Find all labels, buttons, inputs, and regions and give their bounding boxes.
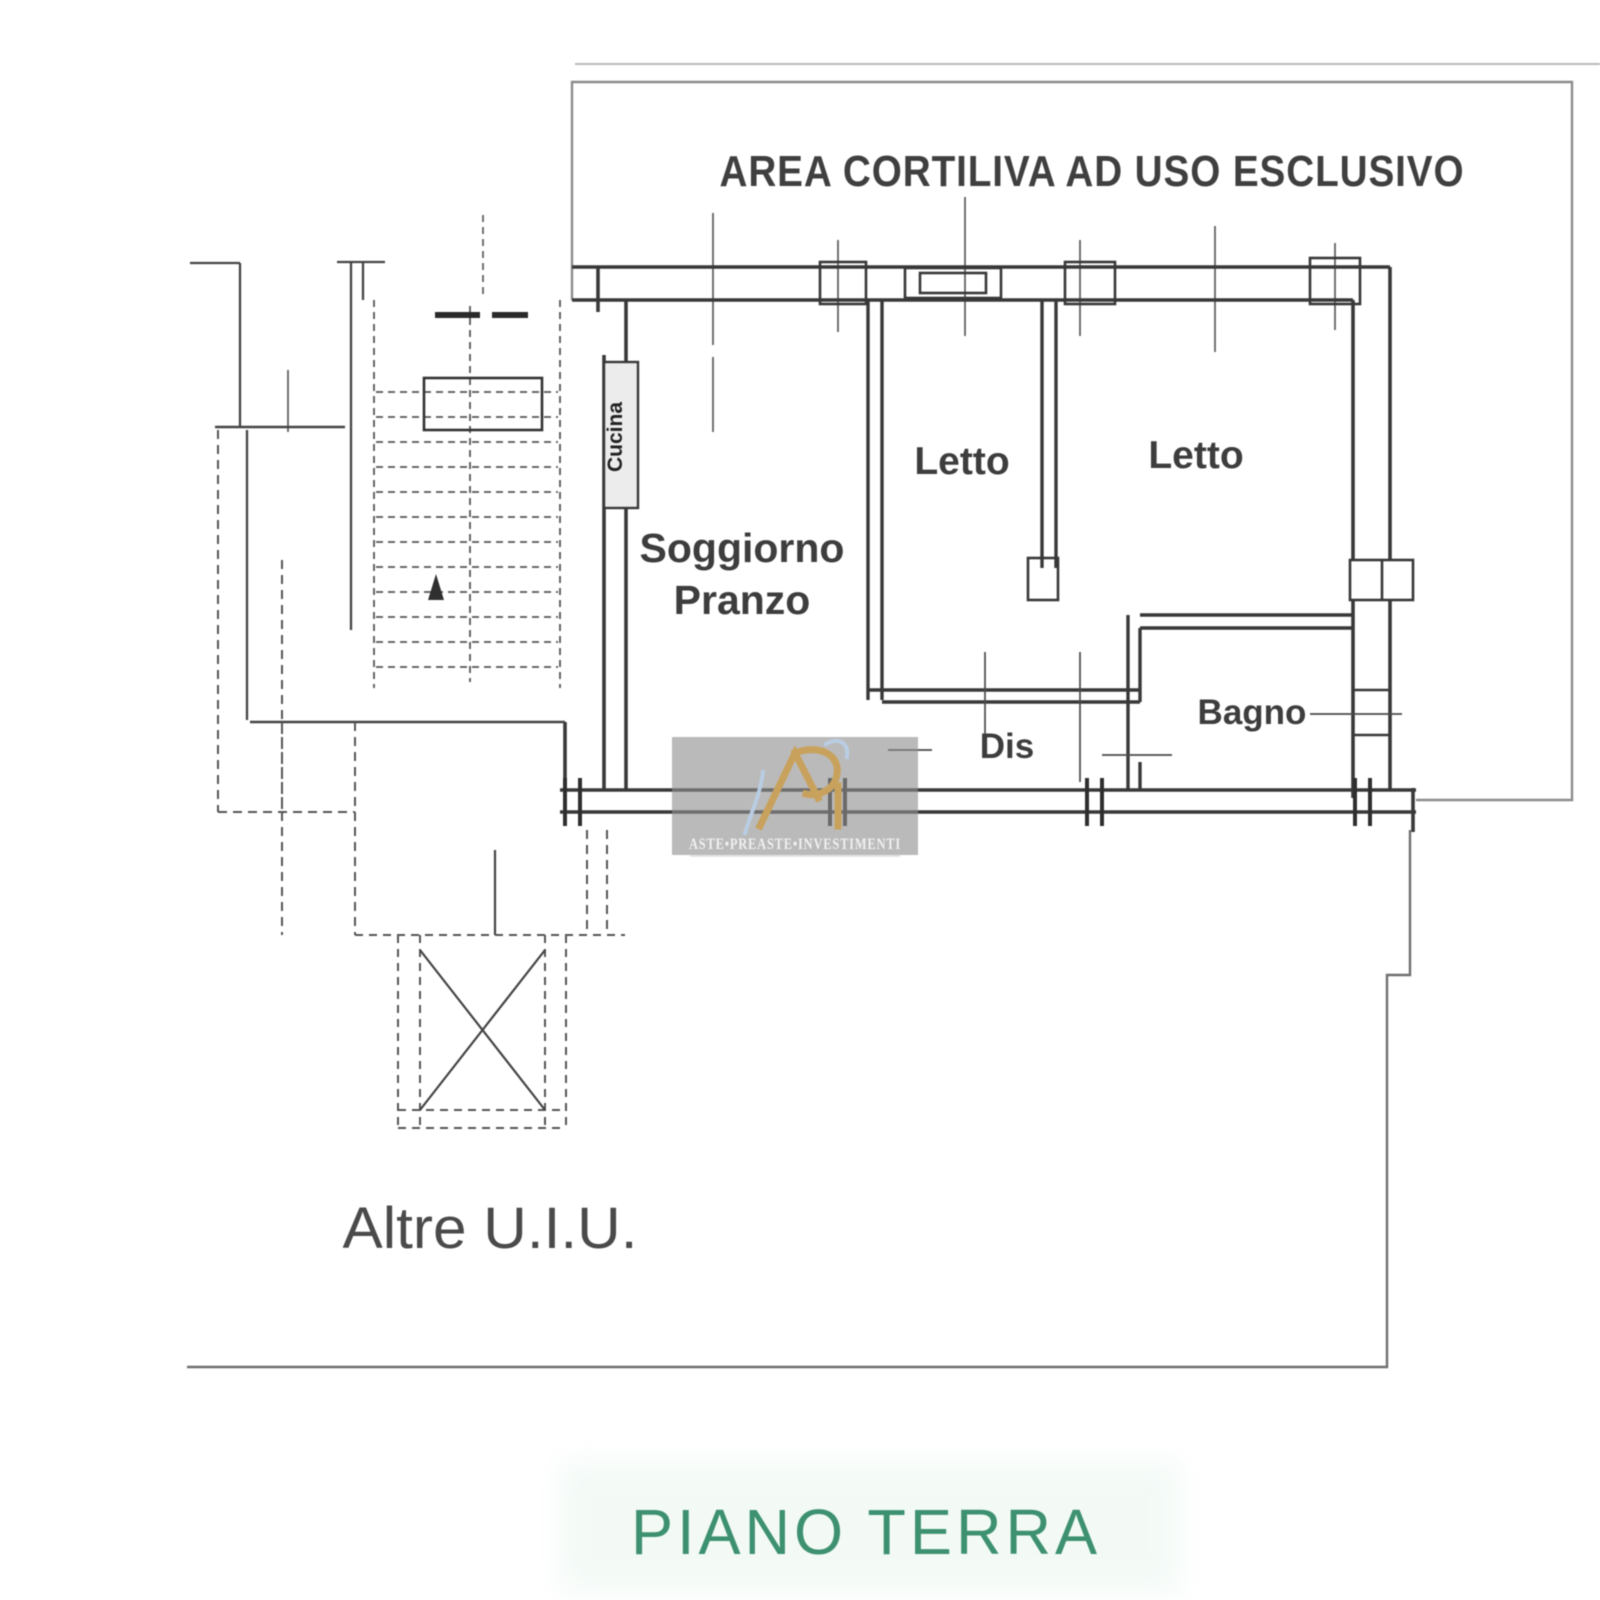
room-label-living-1: Soggiorno — [640, 525, 845, 571]
floor-plan-page: Cucina — [0, 0, 1600, 1600]
floor-title: PIANO TERRA — [631, 1496, 1101, 1568]
shaft-cross-icon — [420, 950, 545, 1110]
courtyard-area-title: AREA CORTILIVA AD USO ESCLUSIVO — [720, 147, 1465, 196]
room-label-bedroom-right: Letto — [1148, 434, 1243, 477]
floor-plan-svg: Cucina — [0, 0, 1600, 1600]
room-label-kitchen: Cucina — [604, 402, 627, 472]
watermark: ASTE•PREASTE•INVESTIMENTI — [672, 737, 918, 856]
left-annex-dashed — [218, 430, 607, 935]
room-label-bedroom-left: Letto — [914, 440, 1009, 483]
room-label-living-2: Pranzo — [674, 577, 811, 623]
room-label-bathroom: Bagno — [1198, 693, 1307, 732]
window-symbols — [820, 258, 1413, 735]
elevator-shaft — [355, 850, 625, 1128]
plot-boundary — [187, 830, 1410, 1367]
kitchen-niche: Cucina — [604, 362, 638, 508]
stair-direction-arrow — [428, 574, 444, 600]
watermark-brand-text: ASTE•PREASTE•INVESTIMENTI — [689, 836, 901, 853]
other-units-label: Altre U.I.U. — [343, 1196, 638, 1261]
door-ticks — [888, 652, 1402, 782]
room-label-hallway: Dis — [980, 727, 1034, 766]
staircase — [374, 300, 560, 688]
